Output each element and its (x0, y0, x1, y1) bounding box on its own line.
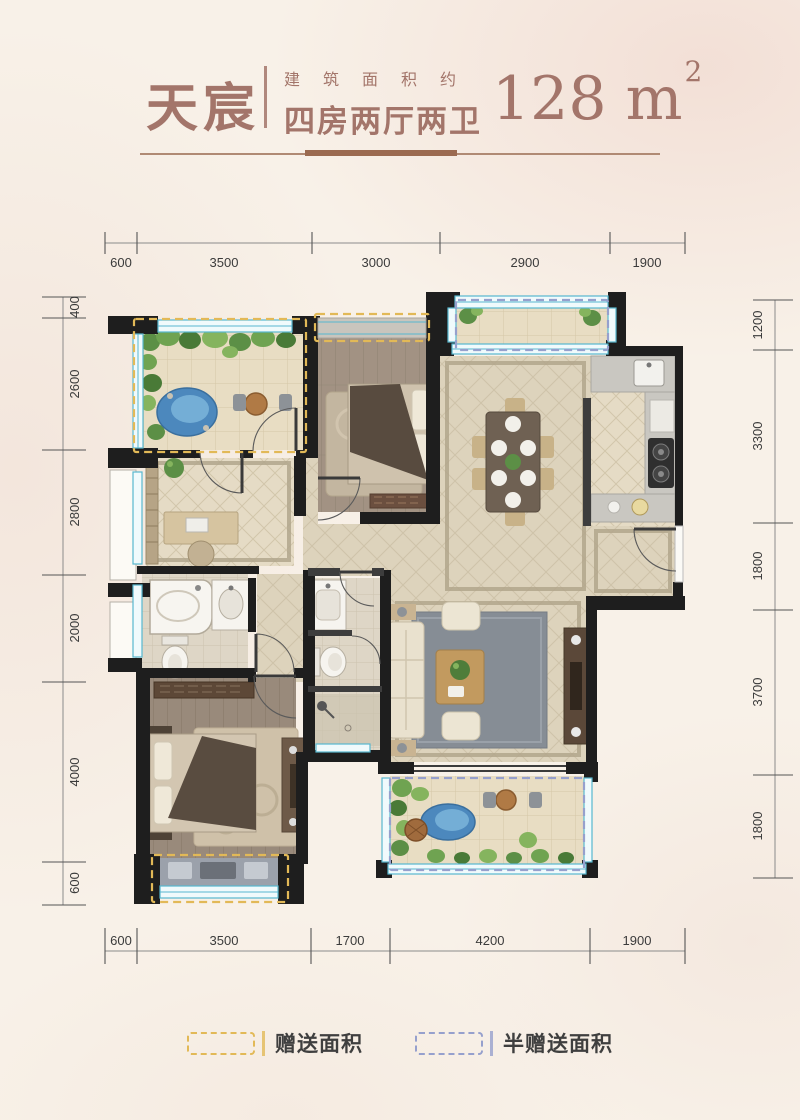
fridge (650, 400, 674, 432)
dim-label: 1900 (623, 933, 652, 948)
balcony-table (496, 790, 516, 810)
dim-label: 1800 (750, 812, 765, 841)
dim-label: 3300 (750, 422, 765, 451)
gift-area-label: 赠送面积 (275, 1028, 363, 1058)
toilet-tank (162, 636, 188, 645)
bookshelf (146, 462, 158, 564)
half-gift-area-swatch (415, 1032, 483, 1055)
half-gift-area-label: 半赠送面积 (503, 1028, 613, 1058)
sink (219, 589, 243, 619)
gift-area-bar (262, 1031, 265, 1056)
bedroom-2 (326, 384, 434, 508)
dim-label: 2000 (67, 614, 82, 643)
dim-label: 2900 (511, 255, 540, 270)
dim-label: 3700 (750, 678, 765, 707)
tv (570, 662, 582, 710)
centerpiece-plant (505, 454, 521, 470)
sink (316, 590, 340, 620)
terrace-chair (233, 394, 246, 411)
half-gift-area-bar (490, 1031, 493, 1056)
pillow (154, 786, 172, 824)
floor-plan: 600 3500 3000 2900 1900 600 3500 1700 42… (0, 0, 800, 1120)
dim-label: 3500 (210, 255, 239, 270)
dim-label: 1900 (633, 255, 662, 270)
dimension-right: 1200 3300 1800 3700 1800 (750, 300, 793, 878)
dim-label: 400 (67, 296, 82, 318)
bowl (632, 499, 648, 515)
dimension-bottom: 600 3500 1700 4200 1900 (105, 928, 685, 964)
terrace-table (245, 393, 267, 415)
shower-area (308, 694, 380, 746)
armchair (442, 712, 480, 740)
bay-window-sill (318, 318, 426, 338)
balcony-chair (483, 792, 496, 808)
dim-label: 4000 (67, 758, 82, 787)
dim-label: 1800 (750, 552, 765, 581)
armchair (442, 602, 480, 630)
dresser (154, 682, 254, 698)
pillow (154, 742, 172, 780)
master-bay-window (160, 858, 278, 886)
dim-label: 4200 (476, 933, 505, 948)
dim-label: 600 (67, 872, 82, 894)
legend: 赠送面积 半赠送面积 (0, 1028, 800, 1058)
wardrobe-handle (290, 764, 296, 808)
dim-label: 600 (110, 933, 132, 948)
legend-half-gift-area: 半赠送面积 (415, 1028, 613, 1058)
foyer-floor (591, 526, 675, 596)
bath-window (133, 585, 142, 657)
hall-floor (257, 574, 303, 682)
bathtub (150, 580, 212, 634)
dim-label: 2600 (67, 370, 82, 399)
dim-label: 600 (110, 255, 132, 270)
dim-label: 1200 (750, 311, 765, 340)
table-plant (450, 660, 470, 680)
pillow (412, 390, 428, 430)
dim-label: 3500 (210, 933, 239, 948)
dim-label: 1700 (336, 933, 365, 948)
dim-label: 2800 (67, 498, 82, 527)
study-window (133, 472, 142, 564)
entry-opening (675, 526, 683, 582)
laptop (186, 518, 208, 532)
dim-label: 3000 (362, 255, 391, 270)
balcony-chair (529, 792, 542, 808)
balcony-slider (414, 766, 566, 771)
dimension-left: 400 2600 2800 2000 4000 600 (42, 296, 86, 905)
dimension-top: 600 3500 3000 2900 1900 (105, 232, 685, 270)
plant (164, 458, 184, 478)
dresser (370, 494, 434, 508)
exterior-ledges (110, 470, 136, 664)
desk-chair (188, 541, 214, 567)
legend-gift-area: 赠送面积 (187, 1028, 363, 1058)
gift-area-swatch (187, 1032, 255, 1055)
